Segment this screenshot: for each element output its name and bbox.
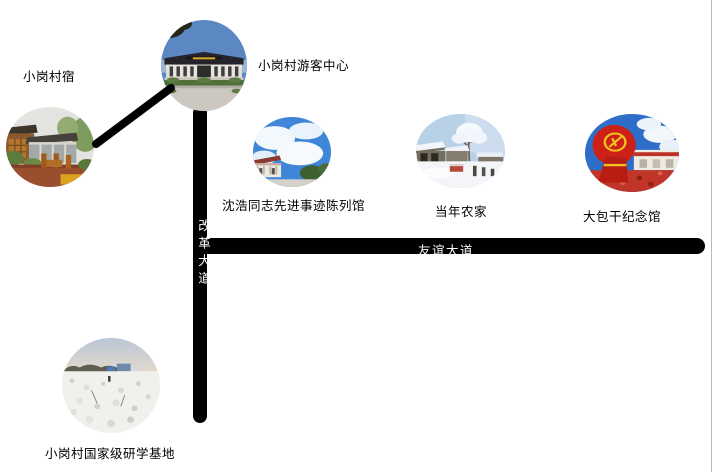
visitor-center-label: 小岗村游客中心 [258,55,349,74]
snowy-farmhouse-image [416,114,505,188]
gaige-avenue-label: 改革大道 [194,219,213,289]
shenhao-exhibition-photo [253,117,331,187]
guesthouse-label: 小岗村宿 [23,66,75,85]
dabaogan-memorial-photo [585,114,679,192]
visitor-center-photo [161,20,247,111]
research-base-label: 小岗村国家级研学基地 [45,443,175,462]
dabaogan-memorial-label: 大包干纪念馆 [583,206,661,225]
dangnian-nongjia-photo [416,114,505,188]
guesthouse-photo [6,107,94,187]
youyi-avenue-label: 友谊大道 [418,240,474,259]
cotton-field-image [62,338,160,433]
research-base-photo [62,338,160,433]
red-flag-monument-image [585,114,679,192]
white-hall-blue-sky-image [253,117,331,187]
village-map: 改革大道 友谊大道 小岗村宿 小岗村游客中心 沈浩同志先进事迹陈列馆 当年农家 … [0,0,712,472]
dangnian-nongjia-label: 当年农家 [435,201,487,220]
shenhao-exhibition-label: 沈浩同志先进事迹陈列馆 [222,195,365,214]
visitor-center-building-image [161,20,247,111]
wooden-homestay-courtyard-image [6,107,94,187]
guesthouse-visitor-connector-line [96,88,171,144]
